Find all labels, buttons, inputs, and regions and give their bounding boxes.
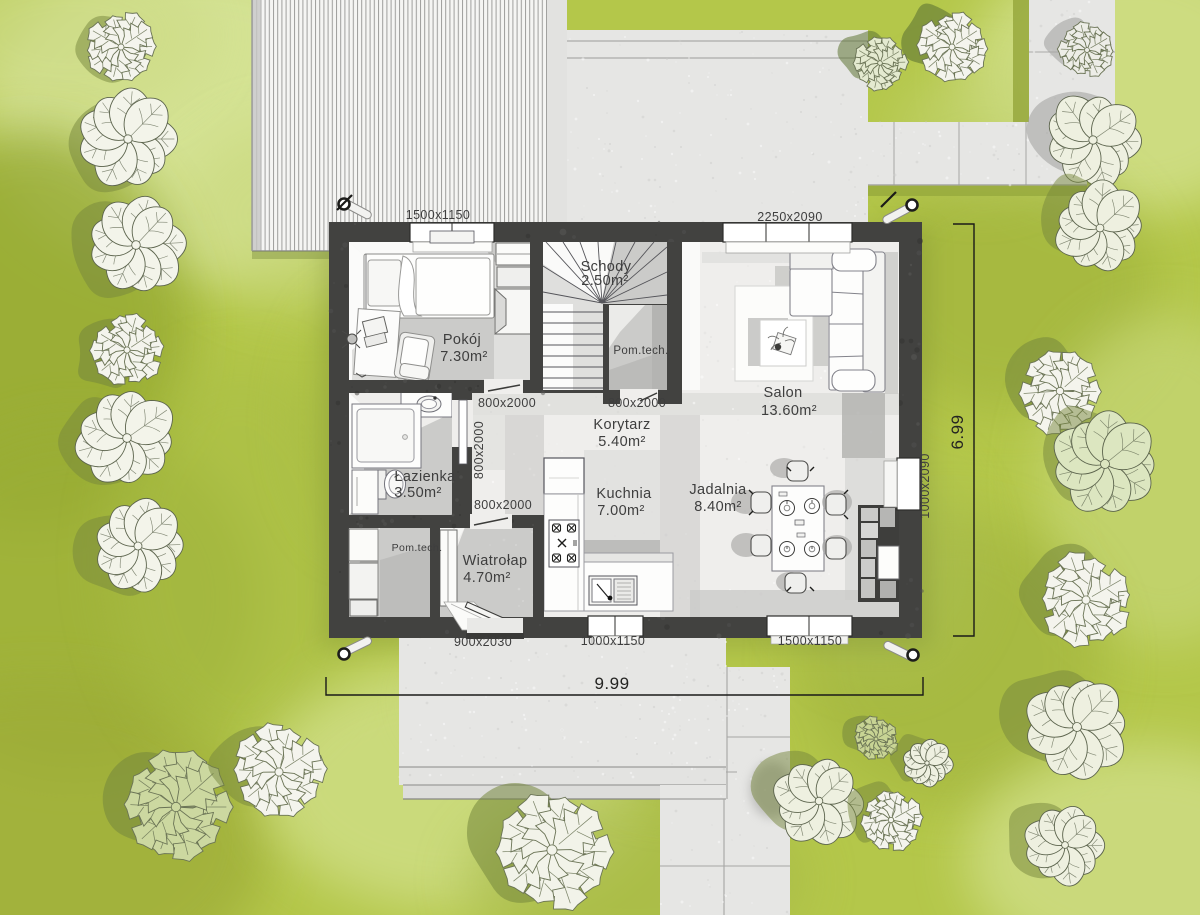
- svg-text:2.50m²: 2.50m²: [581, 273, 629, 289]
- svg-text:7.00m²: 7.00m²: [597, 503, 645, 519]
- svg-text:3.50m²: 3.50m²: [394, 485, 442, 501]
- svg-text:Jadalnia: Jadalnia: [689, 482, 747, 498]
- svg-text:7.30m²: 7.30m²: [440, 349, 488, 365]
- svg-text:1500x1150: 1500x1150: [406, 208, 471, 222]
- svg-text:Pom.tech.: Pom.tech.: [392, 542, 443, 554]
- svg-text:8.40m²: 8.40m²: [694, 499, 742, 515]
- svg-text:Korytarz: Korytarz: [593, 417, 650, 433]
- svg-text:1500x1150: 1500x1150: [778, 634, 843, 648]
- svg-text:9.99: 9.99: [594, 674, 629, 693]
- svg-text:Kuchnia: Kuchnia: [596, 486, 652, 502]
- svg-text:Salon: Salon: [763, 385, 802, 401]
- svg-text:1000x2090: 1000x2090: [918, 453, 932, 518]
- svg-text:800x2000: 800x2000: [478, 396, 536, 410]
- svg-text:800x2000: 800x2000: [472, 421, 486, 479]
- svg-text:4.70m²: 4.70m²: [463, 570, 511, 586]
- svg-text:5.40m²: 5.40m²: [598, 434, 646, 450]
- svg-text:Wiatrołap: Wiatrołap: [463, 553, 528, 569]
- svg-text:6.99: 6.99: [948, 414, 967, 449]
- svg-text:800x2000: 800x2000: [474, 498, 532, 512]
- svg-text:Łazienka: Łazienka: [394, 469, 456, 485]
- svg-text:1000x1150: 1000x1150: [581, 634, 646, 648]
- svg-text:Pom.tech.: Pom.tech.: [613, 345, 668, 357]
- svg-text:900x2030: 900x2030: [454, 635, 512, 649]
- svg-text:Pokój: Pokój: [443, 332, 481, 348]
- svg-text:2250x2090: 2250x2090: [757, 210, 822, 224]
- svg-text:800x2000: 800x2000: [608, 396, 666, 410]
- svg-text:13.60m²: 13.60m²: [761, 403, 817, 419]
